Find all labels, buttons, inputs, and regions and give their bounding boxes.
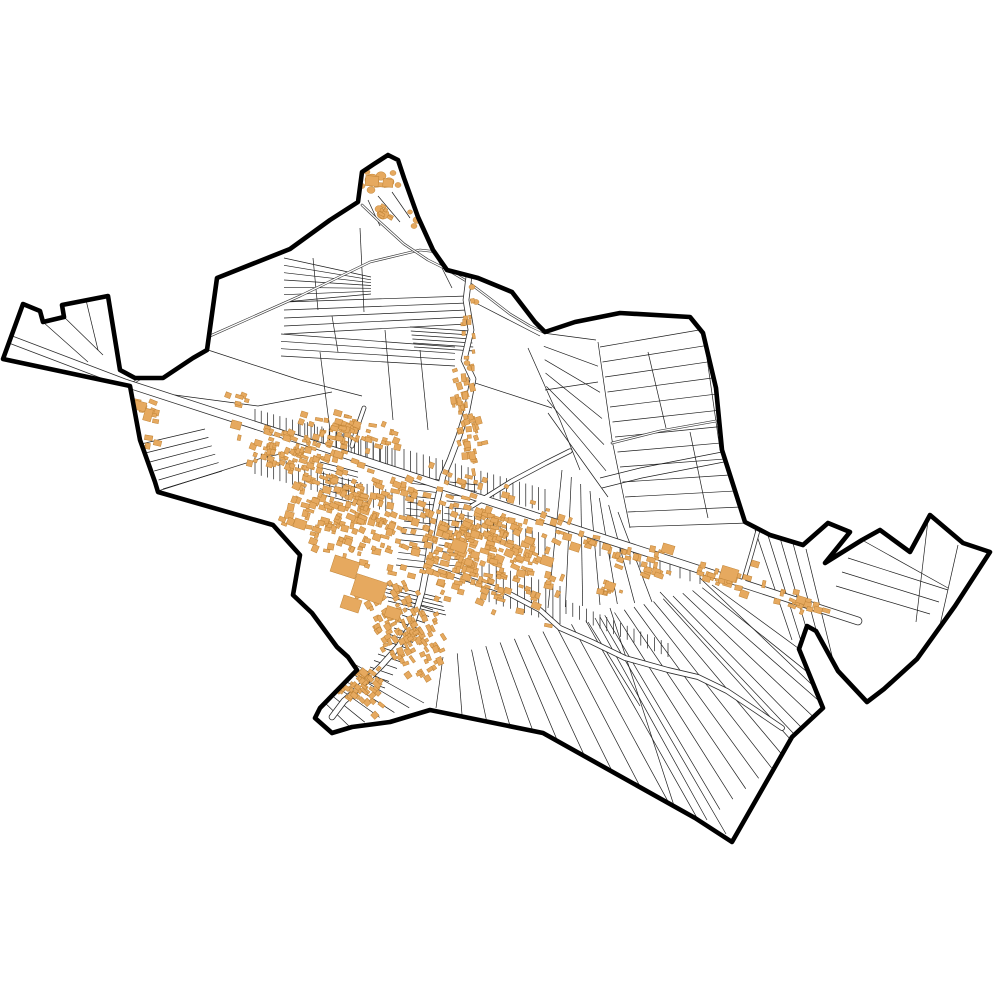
cadastral-map	[0, 0, 1000, 1000]
municipality-boundary	[3, 155, 990, 842]
buildings-layer	[133, 169, 831, 719]
roads-layer	[4, 242, 858, 728]
minor-roads-layer	[128, 205, 716, 443]
map-page	[0, 0, 1000, 1000]
